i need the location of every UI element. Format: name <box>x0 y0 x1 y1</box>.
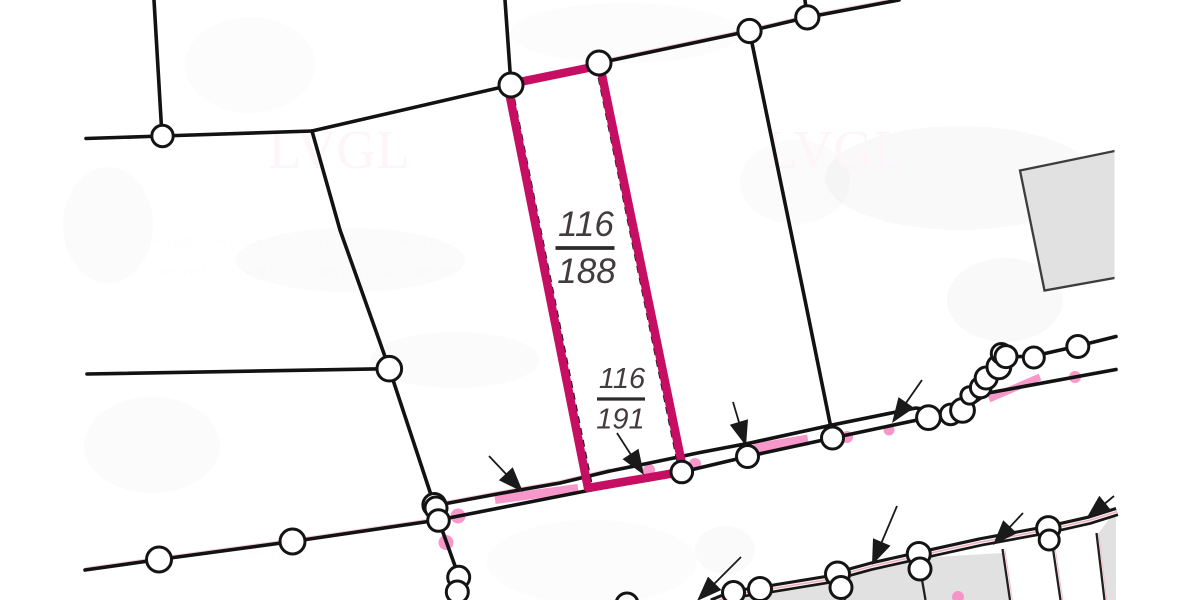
svg-text:www.lvgl.io www.lvgl.io ww: www.lvgl.io www.lvgl.io www.lvgl.io www.… <box>132 234 462 250</box>
svg-text:LVGL: LVGL <box>268 119 410 180</box>
svg-text:www.lvgl.io www.lvgl.io ww: www.lvgl.io www.lvgl.io www.lvgl.io www.… <box>148 264 478 280</box>
svg-text:116: 116 <box>599 363 646 395</box>
svg-text:LVGL: LVGL <box>765 119 907 180</box>
svg-text:191: 191 <box>596 404 644 436</box>
svg-text:116: 116 <box>558 205 614 244</box>
svg-text:188: 188 <box>557 252 616 291</box>
